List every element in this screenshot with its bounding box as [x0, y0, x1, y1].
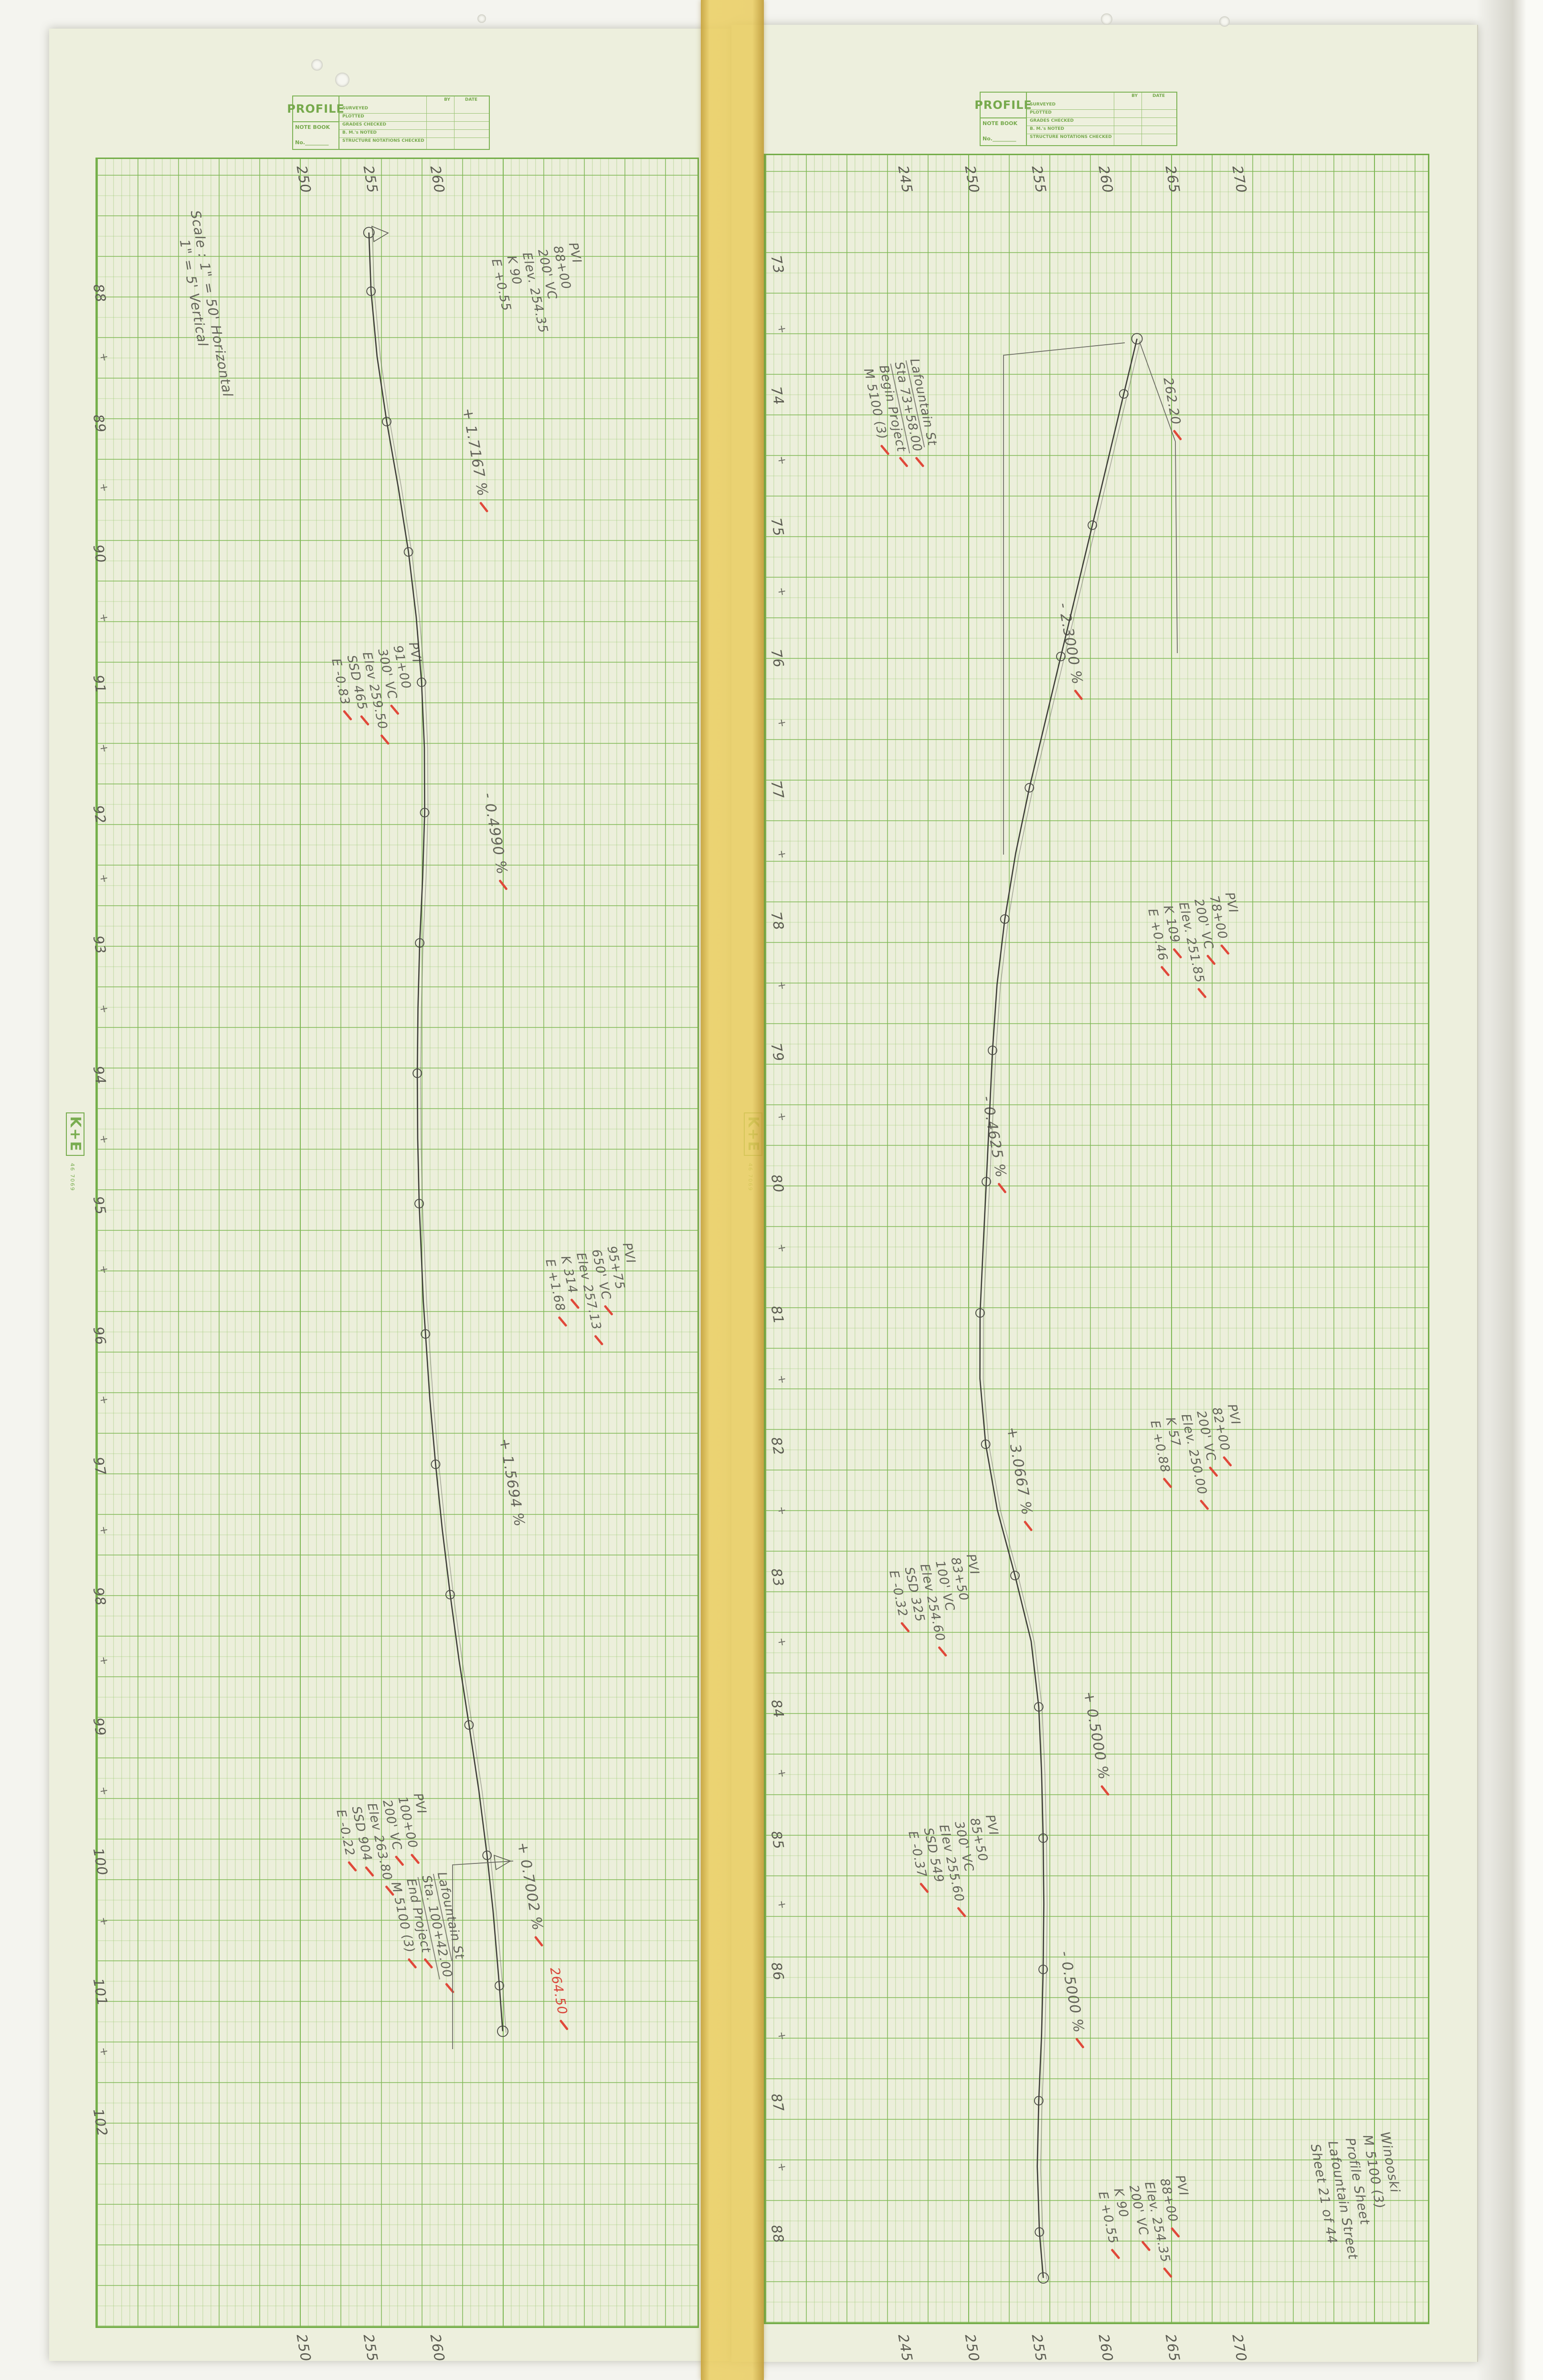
leader-line	[453, 1861, 513, 2049]
punch-hole	[335, 73, 349, 87]
punch-hole	[1219, 16, 1230, 27]
leader-line	[1140, 342, 1177, 653]
profile-lines-overlay	[0, 0, 1543, 2380]
scan-edge-shadow	[1476, 0, 1543, 2380]
profile-line	[369, 233, 503, 2031]
leader-line	[1004, 343, 1125, 855]
ground-line	[372, 234, 506, 2032]
scanned-profile-sheet: PROFILE NOTE BOOK No._________ BY DATE S…	[0, 0, 1543, 2380]
punch-hole	[477, 14, 486, 23]
ground-line	[983, 340, 1141, 2280]
splice-tape	[701, 0, 764, 2380]
punch-hole	[1101, 13, 1112, 25]
punch-hole	[311, 59, 323, 71]
